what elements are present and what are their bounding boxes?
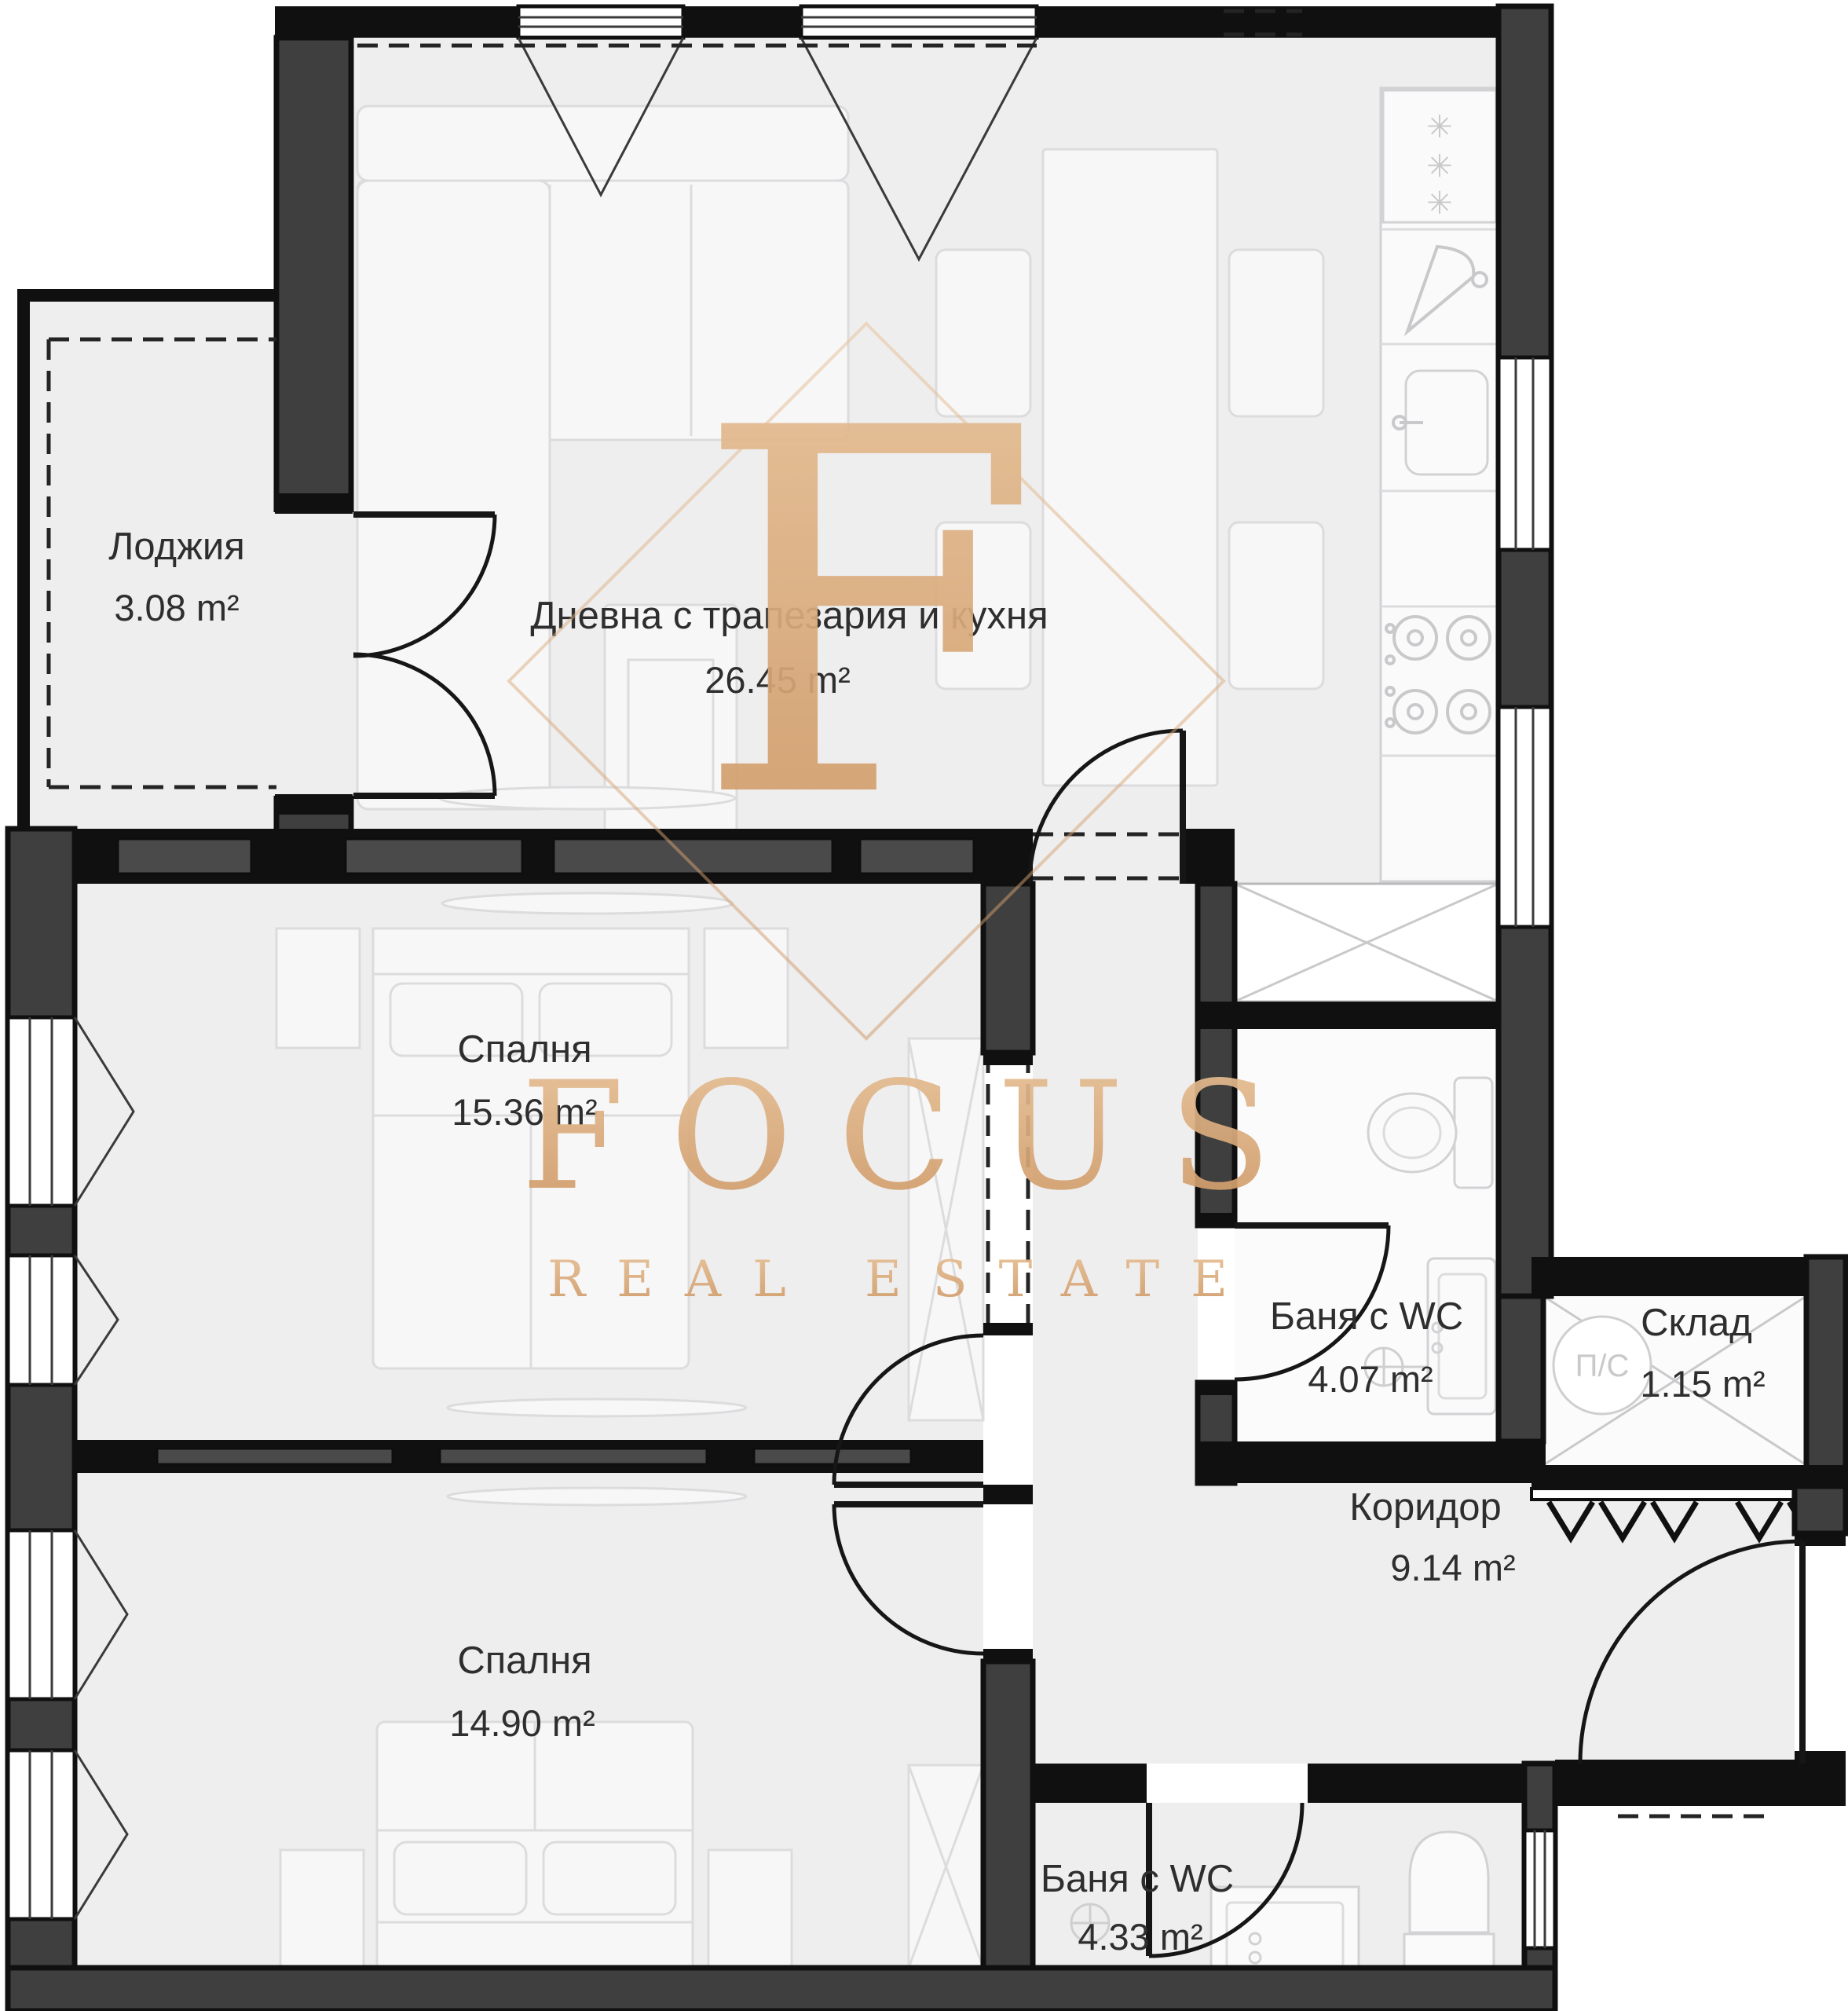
bedroom2-corridor-wall: [983, 1661, 1033, 1968]
loggia-top-wall: [17, 289, 276, 302]
nightstand: [276, 929, 360, 1048]
bottom-exterior-wall: [8, 1968, 1555, 2011]
nightstand: [708, 1850, 792, 1968]
wall-inset: [157, 1449, 393, 1464]
room-label-loggia: Лоджия: [108, 526, 245, 568]
dresser-bedroom1: [442, 893, 733, 914]
installation-shaft: [1235, 884, 1499, 1002]
loggia-left-wall: [17, 289, 30, 829]
wall-stub: [1186, 829, 1235, 884]
storage-right-wall: [1806, 1257, 1846, 1486]
wall-inset: [754, 1449, 911, 1464]
room-label-bedroom2: Спалня: [457, 1639, 591, 1682]
right-exterior-wall: [1499, 6, 1551, 1296]
wall-cap: [983, 1323, 1033, 1335]
window: [1524, 1830, 1555, 1948]
room-area-corridor: 9.14 m²: [1390, 1547, 1515, 1588]
bathroom2-top-wall: [1308, 1764, 1555, 1803]
wall-stub: [983, 1485, 1033, 1504]
floor-plan-page: ✳ ✳ ✳: [0, 0, 1848, 2011]
room-area-bedroom2: 14.90 m²: [449, 1702, 595, 1744]
room-label-corridor: Коридор: [1349, 1486, 1502, 1529]
floor-plan: ✳ ✳ ✳: [0, 0, 1848, 2011]
nightstand: [280, 1850, 364, 1968]
watermark-title: FOCUS: [521, 1049, 1316, 1223]
svg-text:✳: ✳: [1426, 110, 1453, 145]
room-area-bathroom1: 4.07 m²: [1308, 1358, 1433, 1400]
boiler-label: П/С: [1575, 1349, 1630, 1383]
bedroom1-hall-wall: [983, 884, 1033, 1053]
room-label-bathroom1: Баня с WC: [1270, 1295, 1463, 1338]
door-jamb: [275, 493, 353, 514]
room-label-bathroom2: Баня с WC: [1041, 1858, 1234, 1900]
tv-console-bedroom1: [448, 1399, 746, 1416]
corridor-bottom-wall: [1555, 1760, 1846, 1806]
bathroom2-top-wall: [1033, 1764, 1147, 1803]
svg-text:✳: ✳: [1426, 149, 1453, 184]
wall-inset: [346, 839, 522, 874]
kitchen-sink: [1393, 371, 1488, 474]
bathroom1-top-wall: [1198, 1002, 1499, 1029]
corridor-right-wall: [1795, 1486, 1846, 1533]
svg-text:✳: ✳: [1426, 186, 1453, 221]
watermark-subtitle: REAL ESTATE: [547, 1251, 1259, 1309]
window: [1499, 707, 1551, 927]
room-area-loggia: 3.08 m²: [114, 587, 239, 628]
room-area-bathroom2: 4.33 m²: [1078, 1916, 1202, 1958]
storage-left-wall: [1499, 1296, 1543, 1441]
room-area-storage: 1.15 m²: [1640, 1363, 1765, 1405]
watermark-letter: F: [693, 323, 1042, 908]
door-jamb: [275, 794, 353, 815]
storage-top-wall: [1531, 1257, 1846, 1296]
door-jamb: [1198, 1383, 1235, 1395]
window: [1499, 357, 1551, 550]
wall-inset: [118, 839, 251, 874]
kitchen-counter: ✳ ✳ ✳: [1381, 88, 1499, 881]
living-hall-opening: [1033, 829, 1186, 884]
wall-inset: [440, 1449, 707, 1464]
loggia-door-opening: [273, 512, 354, 796]
toilet-bathroom2: [1404, 1832, 1494, 1967]
tv-console-bedroom2: [448, 1488, 746, 1505]
wardrobe-bedroom2: [909, 1765, 983, 1968]
bathroom1-bottom-wall: [1198, 1441, 1546, 1483]
bed-bedroom2: [377, 1722, 693, 1968]
room-label-storage: Склад: [1641, 1302, 1752, 1344]
